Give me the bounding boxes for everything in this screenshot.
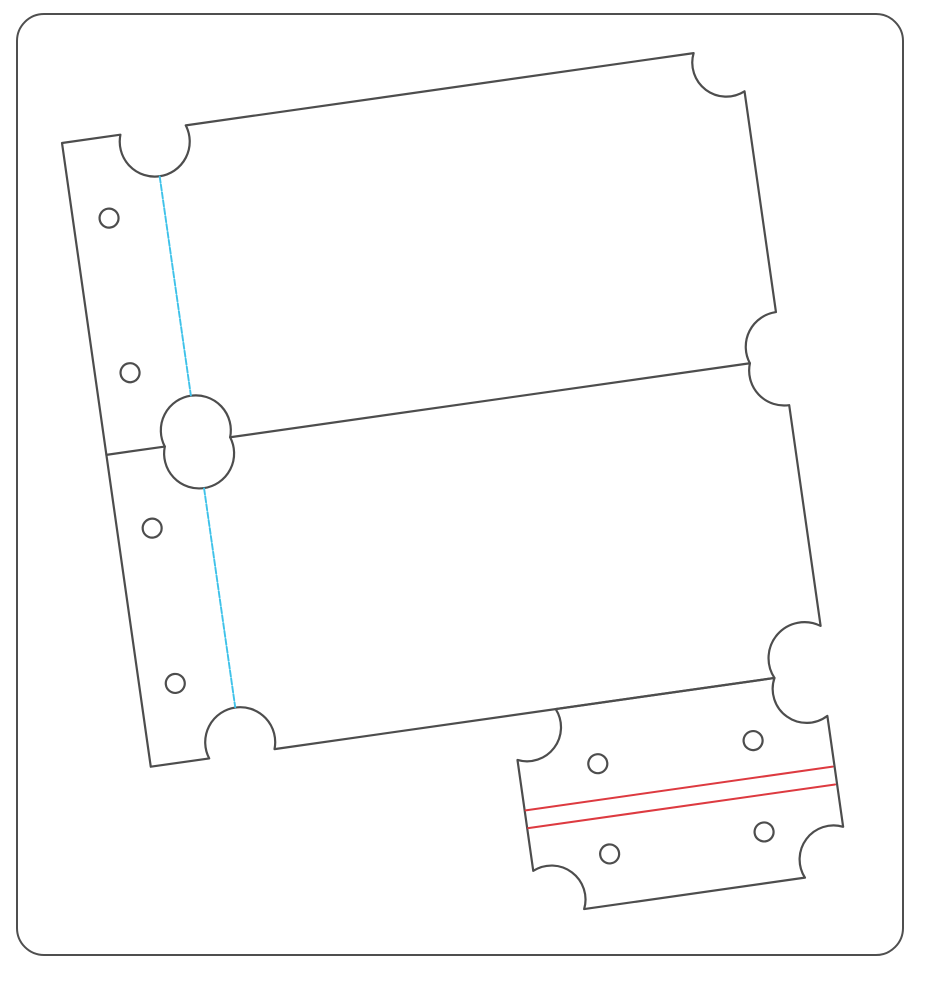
- peanut-cutout: [156, 391, 238, 493]
- stitch-line-lower: [528, 784, 835, 828]
- rivet-hole: [165, 673, 186, 694]
- perforation-line-group: [160, 177, 236, 708]
- rivet-hole: [119, 362, 140, 383]
- die-template-svg: [0, 0, 926, 1000]
- small-ticket-outline: [511, 671, 849, 915]
- rivet-hole: [599, 843, 620, 864]
- rivet-hole: [742, 730, 763, 751]
- rivet-hole: [587, 753, 608, 774]
- rivet-hole: [141, 517, 162, 538]
- outer-plate-frame: [17, 14, 903, 955]
- die-template-image: [0, 0, 926, 1000]
- stitch-line-group: [526, 767, 835, 828]
- stitch-line-upper: [526, 767, 833, 811]
- ticket-divider-line: [106, 363, 750, 455]
- rivet-hole: [98, 207, 119, 228]
- perforation-line-top: [160, 177, 191, 396]
- rivet-hole: [753, 821, 774, 842]
- perforation-line-bottom: [204, 488, 235, 707]
- rotated-die-group: [62, 47, 855, 967]
